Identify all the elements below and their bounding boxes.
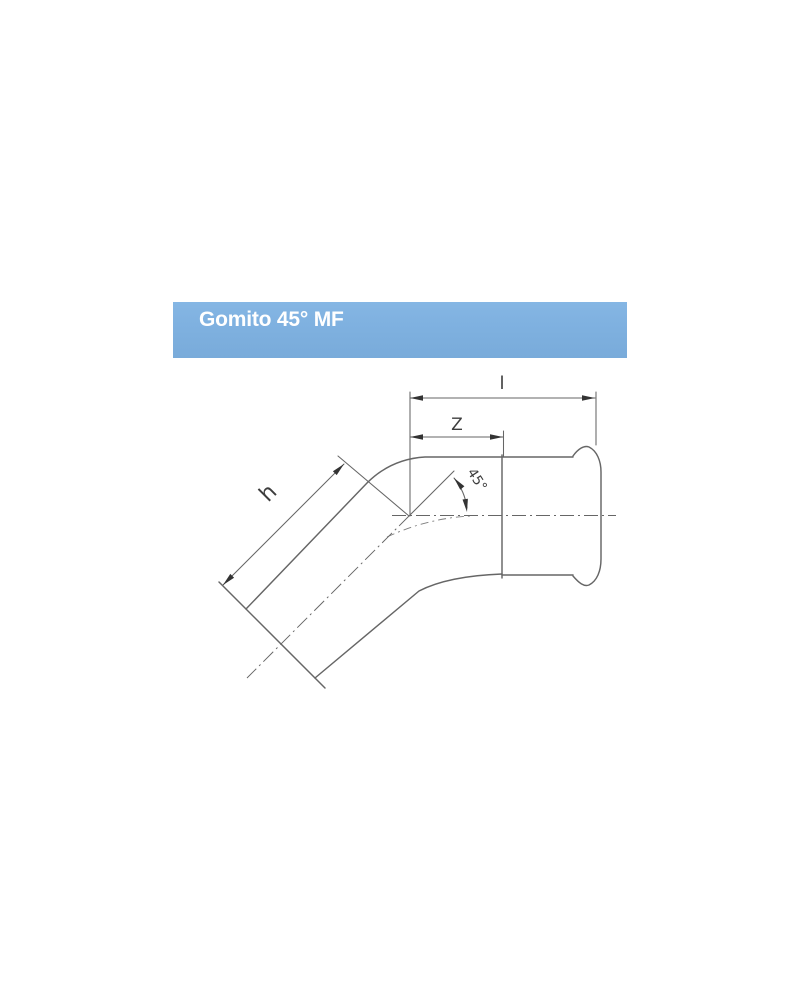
- arrowheads: [223, 395, 595, 585]
- dim-label-z: Z: [451, 415, 463, 435]
- centerlines: [247, 516, 616, 679]
- catalog-page: Gomito 45° MF: [0, 0, 800, 1000]
- arrowhead-arc-bottom: [463, 499, 468, 512]
- arrowhead-arc-top: [454, 478, 464, 490]
- angle-ray-45: [409, 471, 454, 516]
- dim-label-l: l: [499, 373, 504, 394]
- dim-line-h: [223, 464, 344, 585]
- ext-line-h-upper: [338, 456, 409, 516]
- tube-upper-edge: [246, 457, 502, 609]
- bend-centerline-transition: [387, 516, 471, 537]
- arrowhead-l-right: [582, 395, 595, 400]
- male-end-face: [219, 582, 325, 688]
- socket-flare-lip: [573, 446, 601, 585]
- arrowhead-z-left: [410, 434, 423, 439]
- angle-label-45: 45°: [464, 465, 490, 494]
- dimension-lines: [223, 392, 596, 585]
- elbow-45-diagram: l Z h 45°: [0, 0, 800, 1000]
- dim-label-h: h: [255, 480, 283, 508]
- arrowhead-z-right: [490, 434, 503, 439]
- tube-lower-edge: [315, 574, 502, 678]
- arrowhead-l-left: [410, 395, 423, 400]
- angled-centerline: [247, 516, 409, 678]
- dimension-labels: l Z h 45°: [255, 373, 505, 507]
